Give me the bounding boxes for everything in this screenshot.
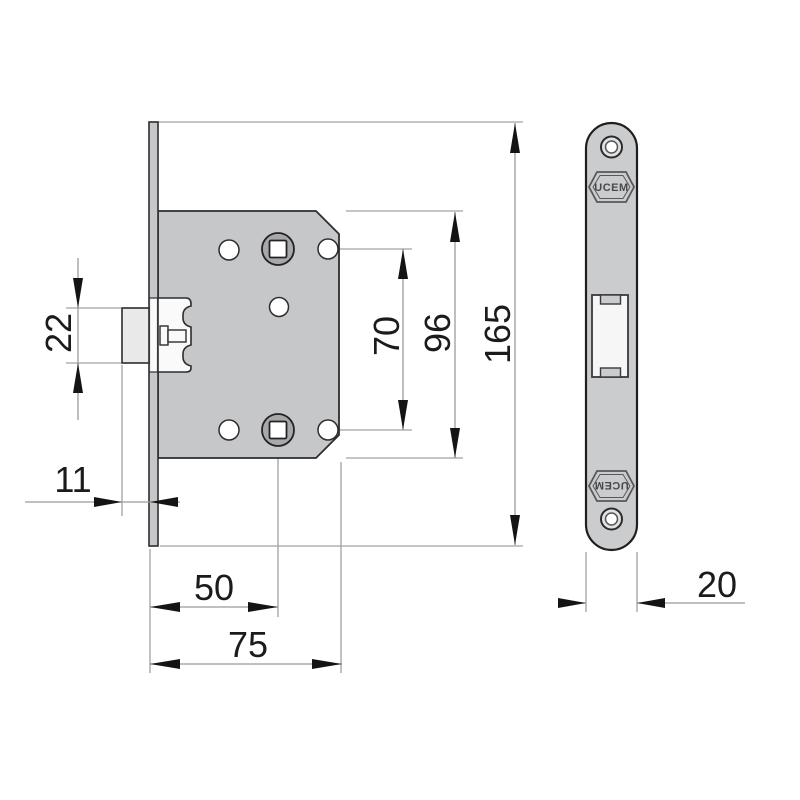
dim-label-75: 75 bbox=[228, 624, 268, 665]
arrowhead bbox=[312, 659, 342, 669]
spindle-hole-bottom bbox=[262, 414, 294, 446]
dim-label-20: 20 bbox=[697, 564, 737, 605]
arrowhead bbox=[398, 249, 408, 279]
arrowhead bbox=[558, 598, 586, 608]
arrowhead bbox=[450, 212, 460, 242]
screw-hole-inner bbox=[606, 513, 618, 525]
arrowhead bbox=[248, 602, 278, 612]
latch-stem bbox=[168, 330, 186, 342]
screw-hole-inner bbox=[606, 141, 618, 153]
front-view: UCEM UCEM 20 bbox=[558, 123, 745, 612]
mortise-lock-drawing: 22 11 50 75 70 bbox=[0, 0, 800, 800]
arrowhead bbox=[450, 428, 460, 458]
arrowhead bbox=[73, 278, 83, 308]
spindle-square-top bbox=[270, 241, 287, 258]
screw-hole-top bbox=[601, 137, 622, 158]
latch-cutout bbox=[592, 295, 628, 377]
dim-body-depth: 75 bbox=[150, 624, 342, 669]
dim-label-165: 165 bbox=[477, 304, 518, 364]
latch-stem-collar bbox=[160, 326, 168, 345]
dim-backset: 50 bbox=[150, 567, 278, 612]
arrowhead bbox=[637, 598, 665, 608]
arrowhead bbox=[510, 123, 520, 153]
spindle-square-bottom bbox=[270, 422, 287, 439]
dim-label-50: 50 bbox=[194, 567, 234, 608]
brand-badge-bottom: UCEM bbox=[589, 471, 634, 501]
hole-bottom-right bbox=[318, 420, 338, 440]
dim-spindle-distance: 70 bbox=[366, 249, 408, 430]
arrowhead bbox=[398, 400, 408, 430]
latch-cutout-notch-bottom bbox=[601, 368, 621, 377]
dim-label-96: 96 bbox=[417, 313, 458, 353]
brand-logo-text: UCEM bbox=[594, 479, 628, 491]
hole-top-left bbox=[219, 240, 239, 260]
latch-cutout-notch-top bbox=[601, 295, 621, 304]
dim-latch-height: 22 bbox=[38, 258, 83, 420]
arrowhead bbox=[73, 363, 83, 393]
dim-body-height: 96 bbox=[417, 212, 460, 458]
brand-badge-top: UCEM bbox=[589, 172, 634, 202]
faceplate-latch-opening bbox=[150, 298, 156, 372]
dim-label-22: 22 bbox=[38, 313, 79, 353]
arrowhead bbox=[150, 659, 180, 669]
arrowhead bbox=[150, 602, 180, 612]
spindle-hole-top bbox=[262, 233, 294, 265]
dim-label-70: 70 bbox=[366, 316, 407, 356]
brand-logo-text: UCEM bbox=[594, 182, 628, 194]
arrowhead bbox=[510, 515, 520, 545]
dim-faceplate-width: 20 bbox=[558, 552, 745, 612]
screw-hole-bottom bbox=[601, 509, 622, 530]
technical-drawing-page: 22 11 50 75 70 bbox=[0, 0, 800, 800]
latch-bolt-front bbox=[122, 308, 149, 363]
dim-faceplate-height: 165 bbox=[477, 123, 520, 545]
hole-top-right bbox=[318, 239, 338, 259]
arrowhead bbox=[94, 497, 122, 507]
hole-bottom-left bbox=[219, 420, 239, 440]
dim-label-11: 11 bbox=[54, 459, 91, 500]
hole-middle bbox=[270, 298, 289, 317]
side-view: 22 11 50 75 70 bbox=[25, 122, 523, 673]
latch-cutout-opening bbox=[592, 295, 628, 377]
